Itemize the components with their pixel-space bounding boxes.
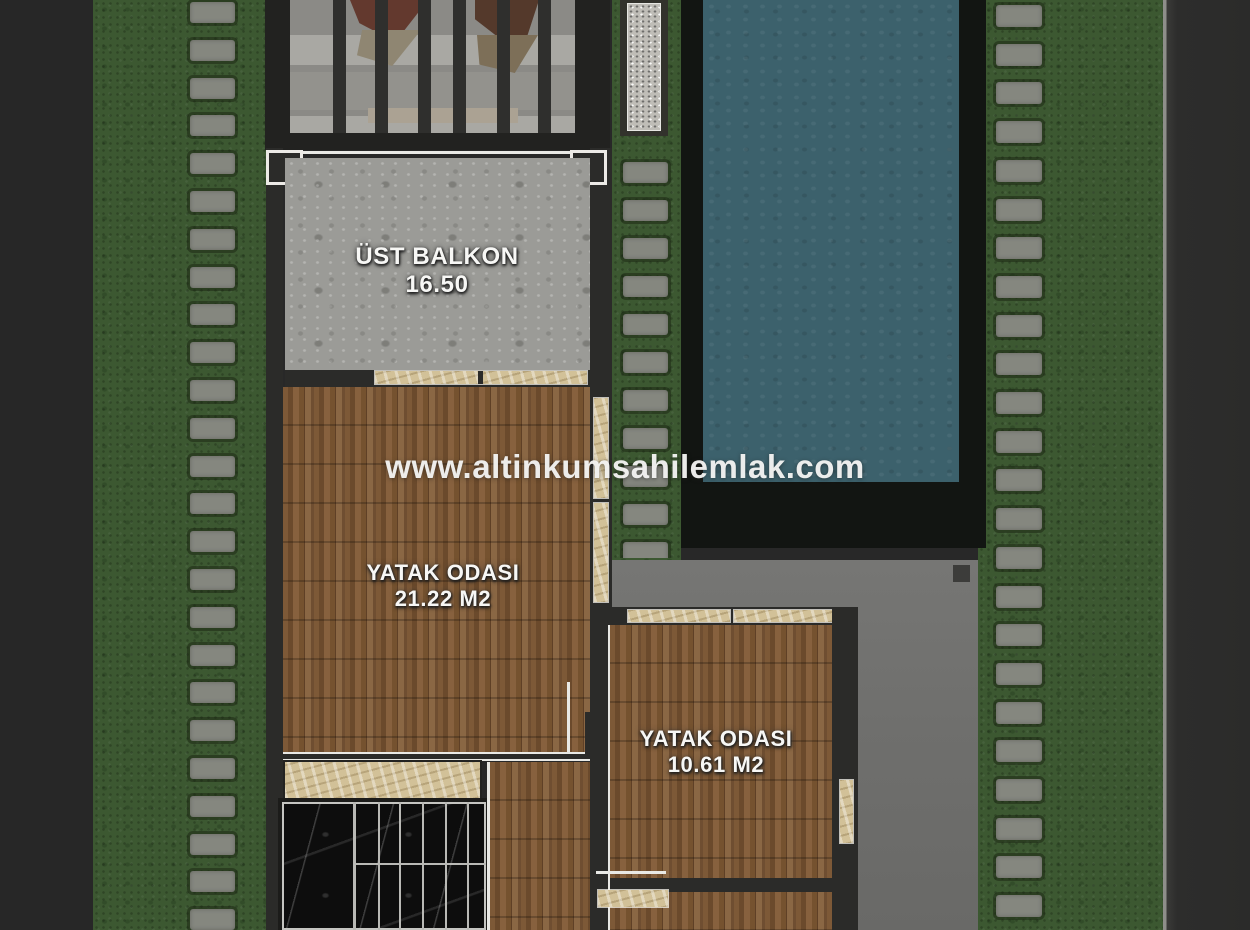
stepping-stone: [623, 314, 668, 335]
stepping-stone: [996, 121, 1042, 143]
stepping-stone: [996, 740, 1042, 762]
stepping-stone: [996, 818, 1042, 840]
stepping-stone: [190, 720, 235, 741]
room-name: YATAK ODASI: [367, 560, 520, 586]
room-name: YATAK ODASI: [640, 726, 793, 752]
pergola-deck: [290, 0, 575, 133]
stepping-stone: [623, 238, 668, 259]
stepping-stone: [623, 276, 668, 297]
stepping-stone: [623, 390, 668, 411]
stepping-stone: [996, 431, 1042, 453]
room-area: 16.50: [355, 271, 518, 299]
stepping-stone: [996, 624, 1042, 646]
stepping-stone: [623, 352, 668, 373]
stepping-stone: [996, 160, 1042, 182]
stepping-stone: [996, 276, 1042, 298]
swimming-pool: [703, 0, 959, 482]
staircase: [278, 798, 490, 930]
stepping-stone: [996, 392, 1042, 414]
balcony-rail: [302, 151, 572, 154]
roof-pergola: [265, 0, 610, 150]
stepping-stone: [623, 200, 668, 221]
corridor-right-wall: [590, 620, 610, 930]
stepping-stone: [623, 542, 668, 558]
wardrobe: [285, 762, 480, 798]
room-label-bedroom1: YATAK ODASI 21.22 M2: [367, 560, 520, 612]
stepping-stone: [190, 645, 235, 666]
stepping-stone: [190, 909, 235, 930]
stepping-stone: [996, 586, 1042, 608]
room-area: 21.22 M2: [367, 586, 520, 612]
door-line-bedroom2: [596, 871, 666, 874]
stepping-stone: [623, 504, 668, 525]
stepping-stone: [190, 682, 235, 703]
stepping-stone: [190, 796, 235, 817]
stepping-stone: [190, 758, 235, 779]
threshold-sill: [598, 890, 668, 907]
stepping-stone: [623, 162, 668, 183]
stepping-stone: [996, 237, 1042, 259]
room-area: 10.61 M2: [640, 752, 793, 778]
stepping-stone: [996, 779, 1042, 801]
bedroom-2-right-wall: [832, 607, 858, 930]
corridor-floor: [490, 762, 590, 930]
stair-marble: [282, 802, 486, 930]
stepping-stone: [996, 702, 1042, 724]
window-sill-bedroom2-b: [734, 610, 833, 622]
bedroom-1-bottom-wall-line: [283, 759, 590, 761]
window-sill-east-2: [594, 503, 608, 602]
stepping-stone: [996, 353, 1042, 375]
floor-plan-image: { "watermark": "www.altinkumsahilemlak.c…: [0, 0, 1250, 930]
watermark: www.altinkumsahilemlak.com: [385, 448, 864, 486]
window-sill-bedroom2-a: [628, 610, 730, 622]
stepping-stone: [996, 547, 1042, 569]
room-label-balcony: ÜST BALKON 16.50: [355, 243, 518, 300]
stepping-stone: [190, 871, 235, 892]
stepping-stone: [996, 315, 1042, 337]
stepping-stone: [996, 895, 1042, 917]
sill-divider: [478, 371, 483, 384]
stepping-stone: [996, 82, 1042, 104]
room-name: ÜST BALKON: [355, 243, 518, 271]
stepping-stone: [623, 428, 668, 449]
stepping-stone: [996, 199, 1042, 221]
stepping-stone: [996, 5, 1042, 27]
stepping-stone: [996, 508, 1042, 530]
stepping-stone: [190, 569, 235, 590]
gravel-path: [627, 3, 661, 131]
stepping-stone: [996, 44, 1042, 66]
stepping-stone: [190, 607, 235, 628]
patio-drain: [953, 565, 970, 582]
door-frame: [567, 682, 570, 753]
room-label-bedroom2: YATAK ODASI 10.61 M2: [640, 726, 793, 778]
stepping-stone: [996, 469, 1042, 491]
stepping-stone: [996, 856, 1042, 878]
stepping-stone: [996, 663, 1042, 685]
window-sill-bedroom2-east: [840, 780, 853, 843]
stepping-stone: [190, 834, 235, 855]
